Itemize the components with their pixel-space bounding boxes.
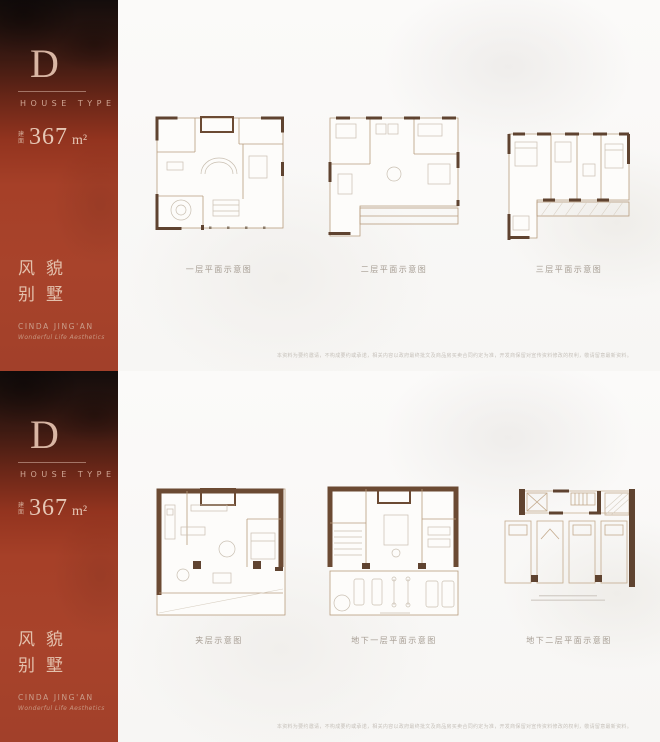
house-type-letter: D [18, 44, 118, 84]
project-name-line2: 别墅 [18, 653, 118, 679]
plan-caption: 三层平面示意图 [536, 264, 603, 275]
area-prefix: 建面 [18, 131, 26, 145]
floor-plan-basement2-drawing [493, 475, 645, 627]
floor-plan-level1-drawing [143, 104, 295, 256]
brand-tagline: Wonderful Life Aesthetics [18, 705, 118, 712]
project-name-line2: 别墅 [18, 282, 118, 308]
area-figure: 建面 367 m² [18, 497, 118, 519]
project-name-line1: 风貌 [18, 627, 118, 653]
area-figure: 建面 367 m² [18, 126, 118, 148]
plans-area-lower: 夹层示意图 [118, 371, 660, 742]
floor-plan-level1: 一层平面示意图 [138, 104, 300, 275]
floor-plan-basement1-drawing [318, 475, 470, 627]
divider-line [18, 91, 86, 92]
brand-name: CINDA JING'AN [18, 693, 118, 702]
floorplan-panel-lower: D HOUSE TYPE 建面 367 m² 风貌 别墅 CINDA JING'… [0, 371, 660, 742]
plan-caption: 地下一层平面示意图 [351, 635, 437, 646]
area-unit: m² [72, 504, 87, 519]
floor-plan-basement2: 地下二层平面示意图 [488, 475, 650, 646]
floor-plan-mezzanine: 夹层示意图 [138, 475, 300, 646]
project-name-line1: 风貌 [18, 256, 118, 282]
area-unit: m² [72, 133, 87, 148]
plans-area-upper: 一层平面示意图 [118, 0, 660, 371]
floor-plan-level3: 三层平面示意图 [488, 104, 650, 275]
plan-caption: 二层平面示意图 [361, 264, 428, 275]
sidebar-upper: D HOUSE TYPE 建面 367 m² 风貌 别墅 CINDA JING'… [0, 0, 118, 371]
brand-name: CINDA JING'AN [18, 322, 118, 331]
floorplan-panel-upper: D HOUSE TYPE 建面 367 m² 风貌 别墅 CINDA JING'… [0, 0, 660, 371]
house-type-subtitle: HOUSE TYPE [18, 99, 118, 108]
plans-row: 一层平面示意图 [118, 0, 660, 275]
divider-line [18, 462, 86, 463]
house-type-letter: D [18, 415, 118, 455]
plan-caption: 地下二层平面示意图 [526, 635, 612, 646]
sidebar-bottom-block: 风貌 别墅 CINDA JING'AN Wonderful Life Aesth… [18, 256, 118, 341]
area-value: 367 [29, 126, 68, 148]
area-value: 367 [29, 497, 68, 519]
floor-plan-level2: 二层平面示意图 [313, 104, 475, 275]
sidebar-bottom-block: 风貌 别墅 CINDA JING'AN Wonderful Life Aesth… [18, 627, 118, 712]
plan-caption: 一层平面示意图 [186, 264, 253, 275]
brand-tagline: Wonderful Life Aesthetics [18, 334, 118, 341]
sidebar-lower: D HOUSE TYPE 建面 367 m² 风貌 别墅 CINDA JING'… [0, 371, 118, 742]
floor-plan-basement1: 地下一层平面示意图 [313, 475, 475, 646]
house-type-subtitle: HOUSE TYPE [18, 470, 118, 479]
floor-plan-level2-drawing [318, 104, 470, 256]
brochure-page: D HOUSE TYPE 建面 367 m² 风貌 别墅 CINDA JING'… [0, 0, 660, 742]
area-prefix: 建面 [18, 502, 26, 516]
floor-plan-mezzanine-drawing [143, 475, 295, 627]
floor-plan-level3-drawing [493, 104, 645, 256]
legal-disclaimer: 本资料为要约邀请，不构成要约或承诺，相关内容以政府最终批文及商品房买卖合同约定为… [277, 723, 632, 730]
plans-row: 夹层示意图 [118, 371, 660, 646]
legal-disclaimer: 本资料为要约邀请，不构成要约或承诺，相关内容以政府最终批文及商品房买卖合同约定为… [277, 352, 632, 359]
plan-caption: 夹层示意图 [195, 635, 243, 646]
